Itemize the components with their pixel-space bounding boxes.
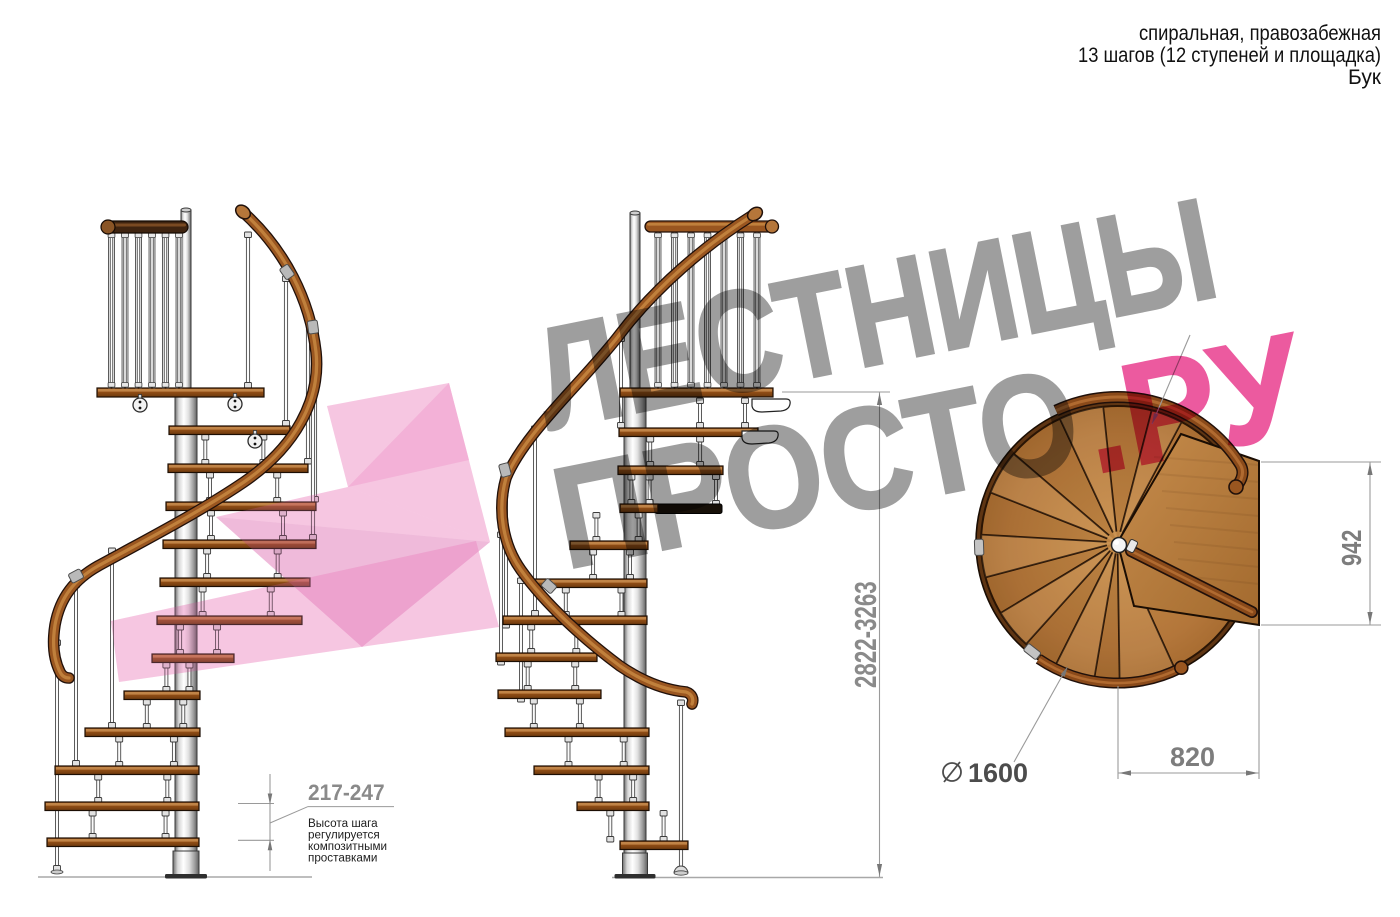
svg-text:1600: 1600 — [968, 758, 1028, 788]
svg-text:820: 820 — [1170, 742, 1215, 772]
svg-text:спиральная, правозабежная: спиральная, правозабежная — [1139, 22, 1381, 45]
svg-text:217-247: 217-247 — [308, 781, 385, 806]
svg-text:942: 942 — [1336, 530, 1367, 566]
svg-text:13 шагов (12 ступеней и площад: 13 шагов (12 ступеней и площадка) — [1078, 44, 1381, 67]
svg-text:Бук: Бук — [1348, 66, 1382, 89]
svg-text:2822-3263: 2822-3263 — [848, 581, 882, 688]
svg-text:проставками: проставками — [308, 850, 377, 864]
